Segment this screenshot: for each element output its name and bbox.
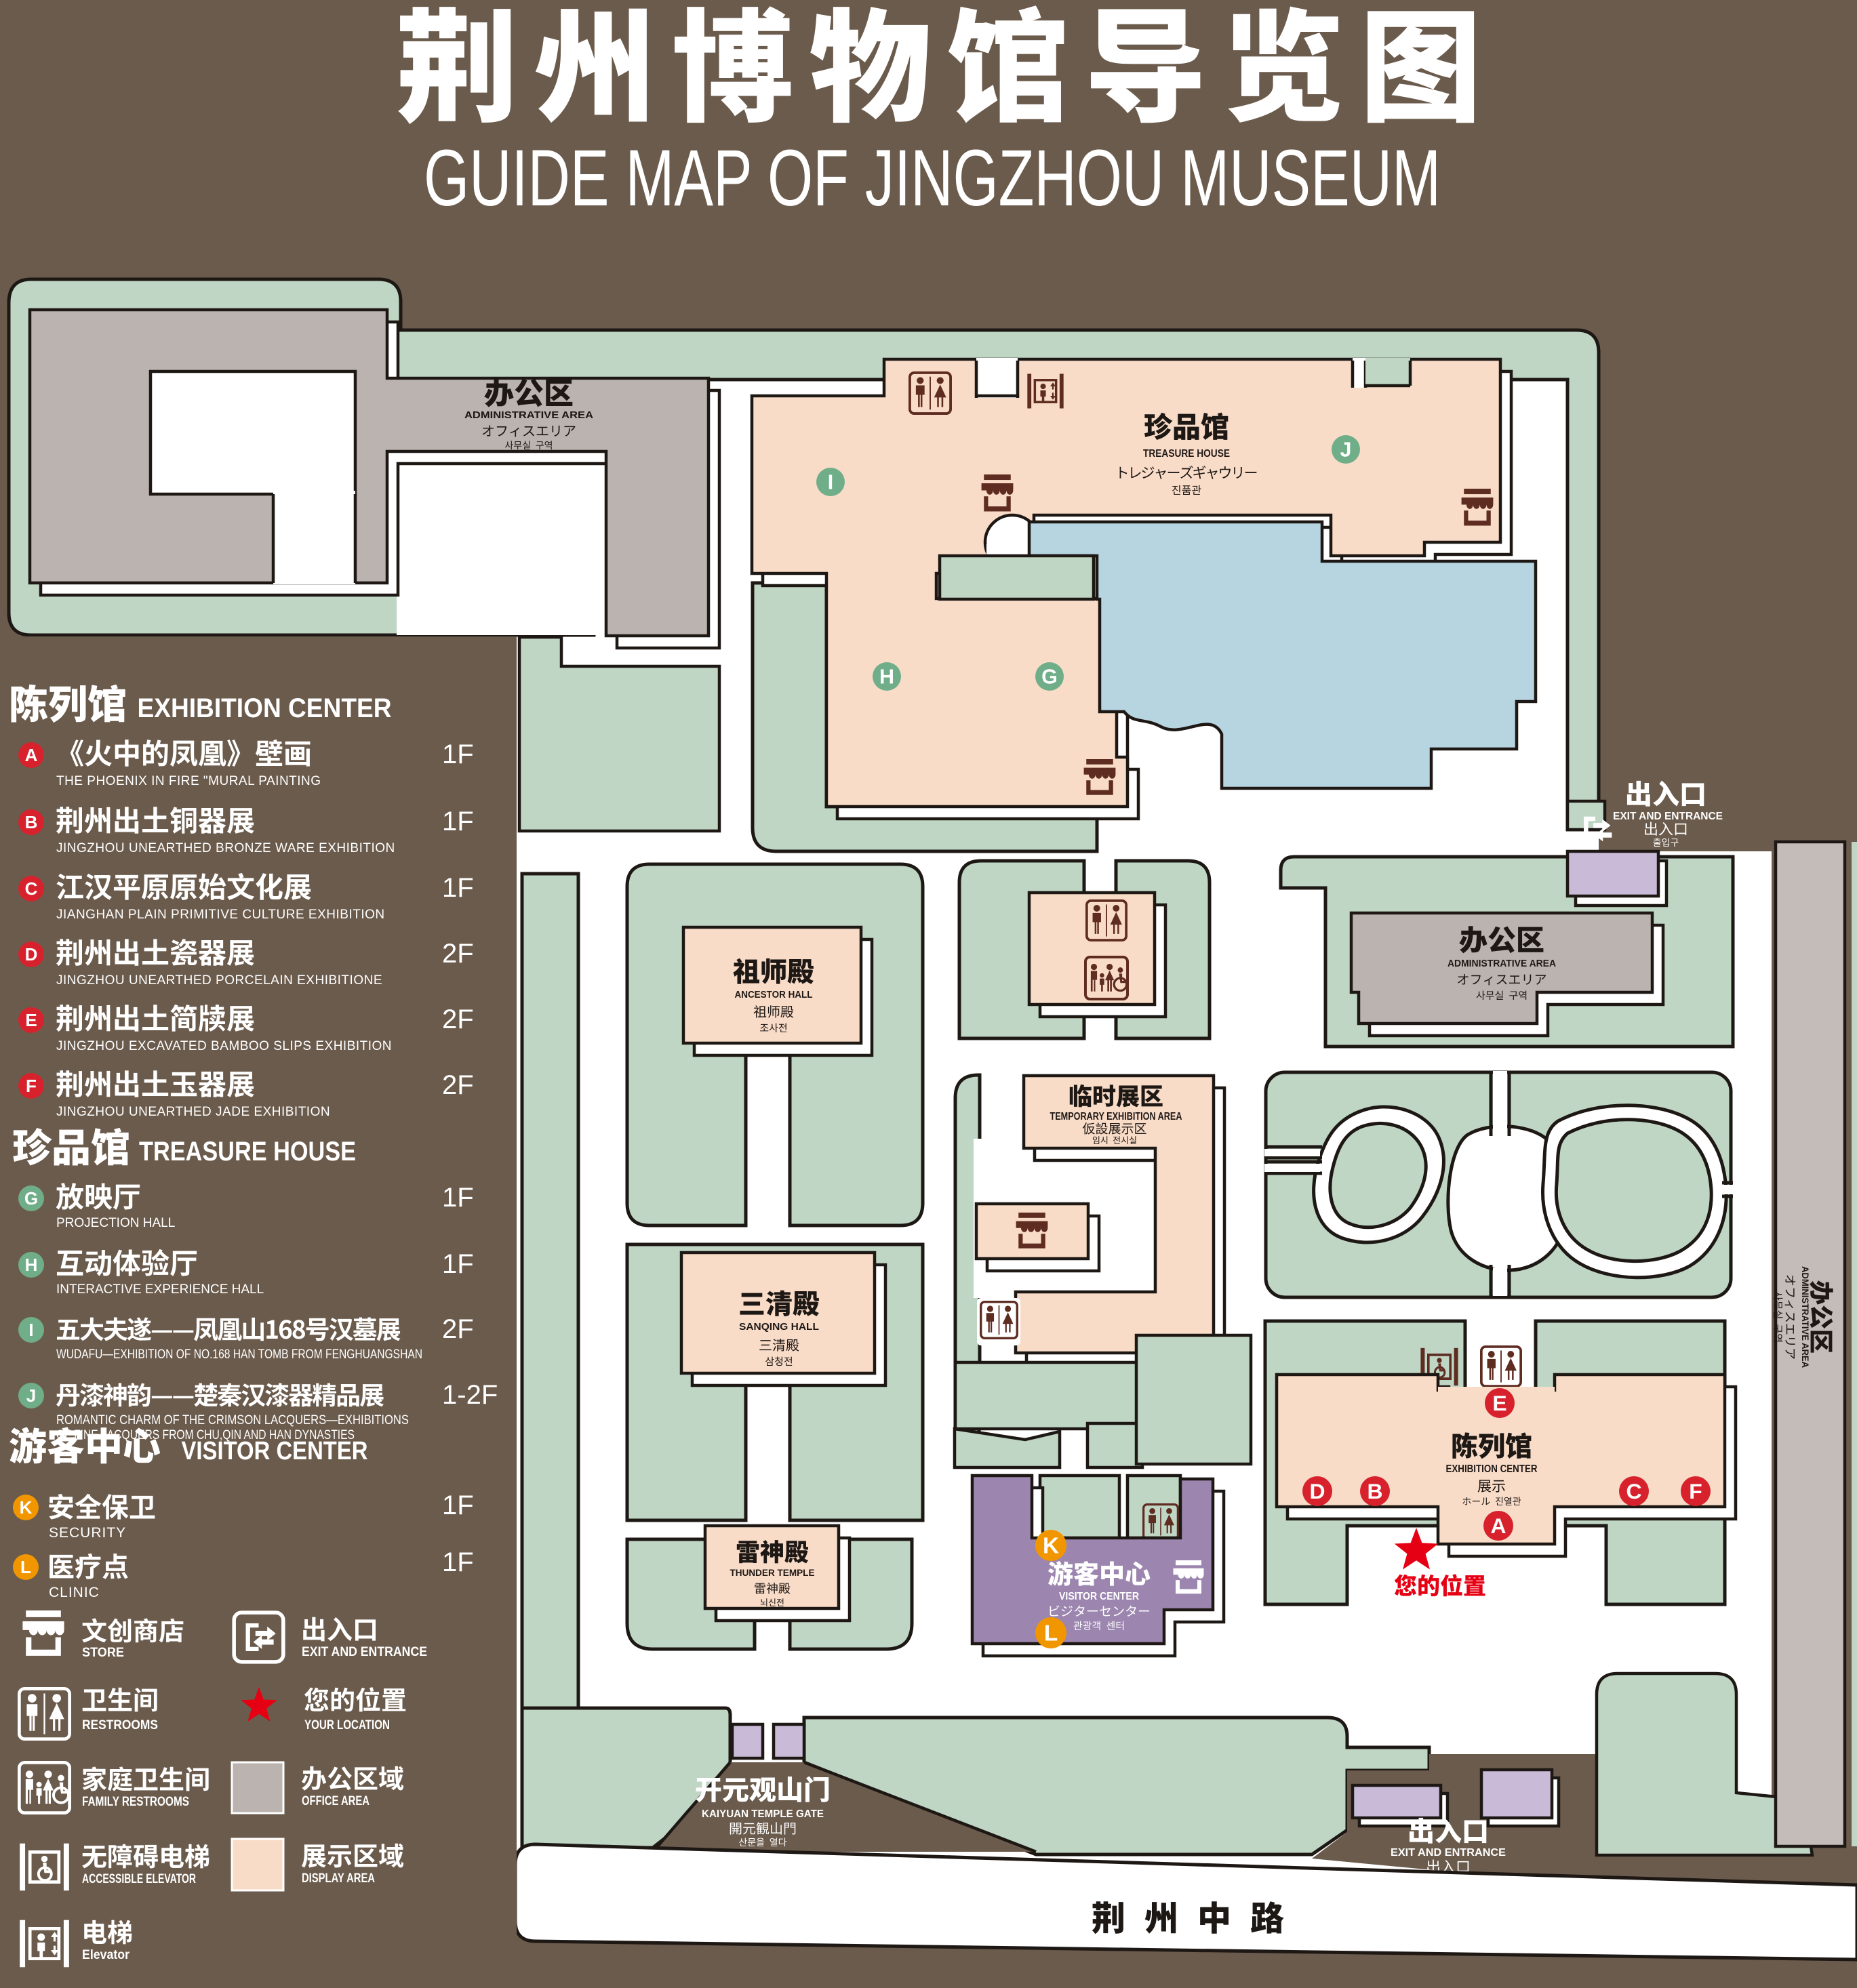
svg-text:1-2F: 1-2F — [442, 1380, 498, 1410]
svg-text:EXIT AND ENTRANCE: EXIT AND ENTRANCE — [1391, 1847, 1506, 1859]
svg-text:I: I — [828, 471, 833, 494]
svg-text:2F: 2F — [442, 1005, 474, 1034]
svg-text:JINGZHOU UNEARTHED PORCELAIN E: JINGZHOU UNEARTHED PORCELAIN EXHIBITIONE — [56, 973, 382, 988]
svg-text:1F: 1F — [442, 739, 474, 769]
svg-text:TREASURE HOUSE: TREASURE HOUSE — [139, 1137, 356, 1167]
svg-text:TEMPORARY EXHIBITION AREA: TEMPORARY EXHIBITION AREA — [1050, 1111, 1182, 1122]
svg-text:2F: 2F — [442, 939, 474, 969]
svg-text:EXIT AND ENTRANCE: EXIT AND ENTRANCE — [1613, 811, 1723, 822]
svg-text:PROJECTION HALL: PROJECTION HALL — [56, 1216, 175, 1230]
svg-text:2F: 2F — [442, 1070, 474, 1100]
svg-text:YOUR LOCATION: YOUR LOCATION — [304, 1718, 390, 1732]
svg-text:CLINIC: CLINIC — [49, 1585, 100, 1600]
svg-text:JINGZHOU EXCAVATED BAMBOO SLIP: JINGZHOU EXCAVATED BAMBOO SLIPS EXHIBITI… — [56, 1039, 392, 1053]
svg-text:E: E — [25, 1010, 37, 1030]
svg-text:K: K — [1043, 1534, 1059, 1559]
svg-text:SANQING HALL: SANQING HALL — [739, 1321, 819, 1333]
svg-text:ADMINISTRATIVE AREA: ADMINISTRATIVE AREA — [1800, 1266, 1811, 1368]
svg-text:STORE: STORE — [82, 1646, 124, 1660]
svg-text:1F: 1F — [442, 873, 474, 903]
svg-text:THUNDER TEMPLE: THUNDER TEMPLE — [730, 1567, 815, 1578]
svg-text:JINGZHOU UNEARTHED JADE EXHIBI: JINGZHOU UNEARTHED JADE EXHIBITION — [56, 1105, 330, 1119]
svg-text:A: A — [25, 745, 38, 765]
svg-text:EXIT AND ENTRANCE: EXIT AND ENTRANCE — [302, 1645, 427, 1659]
svg-text:RESTROOMS: RESTROOMS — [82, 1718, 158, 1732]
svg-text:F: F — [1689, 1479, 1702, 1503]
svg-text:VISITOR CENTER: VISITOR CENTER — [1059, 1591, 1139, 1602]
svg-text:E: E — [1492, 1391, 1506, 1415]
svg-text:OFFICE AREA: OFFICE AREA — [302, 1794, 370, 1808]
svg-text:JINGZHOU UNEARTHED BRONZE WARE: JINGZHOU UNEARTHED BRONZE WARE EXHIBITIO… — [56, 841, 395, 855]
svg-text:ANCESTOR HALL: ANCESTOR HALL — [735, 989, 813, 1000]
svg-text:ADMINISTRATIVE AREA: ADMINISTRATIVE AREA — [1447, 958, 1556, 969]
svg-text:B: B — [25, 812, 38, 832]
svg-text:TREASURE HOUSE: TREASURE HOUSE — [1143, 448, 1230, 460]
svg-text:J: J — [26, 1385, 36, 1406]
svg-text:2F: 2F — [442, 1314, 474, 1344]
svg-text:K: K — [20, 1497, 33, 1518]
svg-text:H: H — [25, 1255, 38, 1275]
svg-text:1F: 1F — [442, 1249, 474, 1279]
svg-text:A: A — [1490, 1514, 1506, 1538]
svg-text:DISPLAY AREA: DISPLAY AREA — [302, 1871, 375, 1886]
svg-text:C: C — [1626, 1479, 1641, 1503]
svg-text:G: G — [1041, 666, 1058, 689]
svg-text:FAMILY RESTROOMS: FAMILY RESTROOMS — [82, 1795, 189, 1809]
svg-text:INTERACTIVE EXPERIENCE HALL: INTERACTIVE EXPERIENCE HALL — [56, 1282, 264, 1297]
svg-text:1F: 1F — [442, 1547, 474, 1577]
svg-text:J: J — [1340, 439, 1352, 462]
svg-text:B: B — [1367, 1479, 1382, 1503]
svg-text:1F: 1F — [442, 1183, 474, 1213]
svg-text:D: D — [25, 944, 38, 965]
svg-text:GUIDE MAP OF JINGZHOU MUSEUM: GUIDE MAP OF JINGZHOU MUSEUM — [424, 134, 1441, 223]
svg-text:I: I — [28, 1320, 33, 1340]
svg-text:ACCESSIBLE ELEVATOR: ACCESSIBLE ELEVATOR — [82, 1872, 196, 1886]
svg-text:1F: 1F — [442, 807, 474, 836]
svg-text:KAIYUAN TEMPLE GATE: KAIYUAN TEMPLE GATE — [702, 1808, 824, 1820]
svg-text:ADMINISTRATIVE AREA: ADMINISTRATIVE AREA — [464, 409, 593, 421]
svg-text:ROMANTIC CHARM OF THE CRIMSON: ROMANTIC CHARM OF THE CRIMSON LACQUERS—E… — [56, 1413, 409, 1427]
svg-text:1F: 1F — [442, 1490, 474, 1520]
svg-text:THE PHOENIX IN FIRE "MURAL PAI: THE PHOENIX IN FIRE "MURAL PAINTING — [56, 774, 321, 788]
svg-text:H: H — [879, 666, 894, 689]
svg-text:EXHIBITION CENTER: EXHIBITION CENTER — [1446, 1463, 1538, 1475]
svg-text:EXHIBITION CENTER: EXHIBITION CENTER — [138, 693, 392, 723]
svg-text:L: L — [1044, 1621, 1058, 1646]
svg-text:Elevator: Elevator — [82, 1948, 130, 1962]
svg-text:WUDAFU—EXHIBITION OF NO.168 HA: WUDAFU—EXHIBITION OF NO.168 HAN TOMB FRO… — [56, 1347, 422, 1362]
svg-text:F: F — [26, 1076, 37, 1096]
svg-text:G: G — [24, 1188, 38, 1209]
svg-text:D: D — [1309, 1479, 1325, 1503]
svg-text:JIANGHAN PLAIN PRIMITIVE CULTU: JIANGHAN PLAIN PRIMITIVE CULTURE EXHIBIT… — [56, 908, 385, 922]
svg-text:L: L — [20, 1557, 31, 1577]
svg-text:VISITOR CENTER: VISITOR CENTER — [182, 1437, 368, 1465]
svg-text:C: C — [25, 878, 38, 899]
svg-text:SECURITY: SECURITY — [49, 1525, 126, 1541]
